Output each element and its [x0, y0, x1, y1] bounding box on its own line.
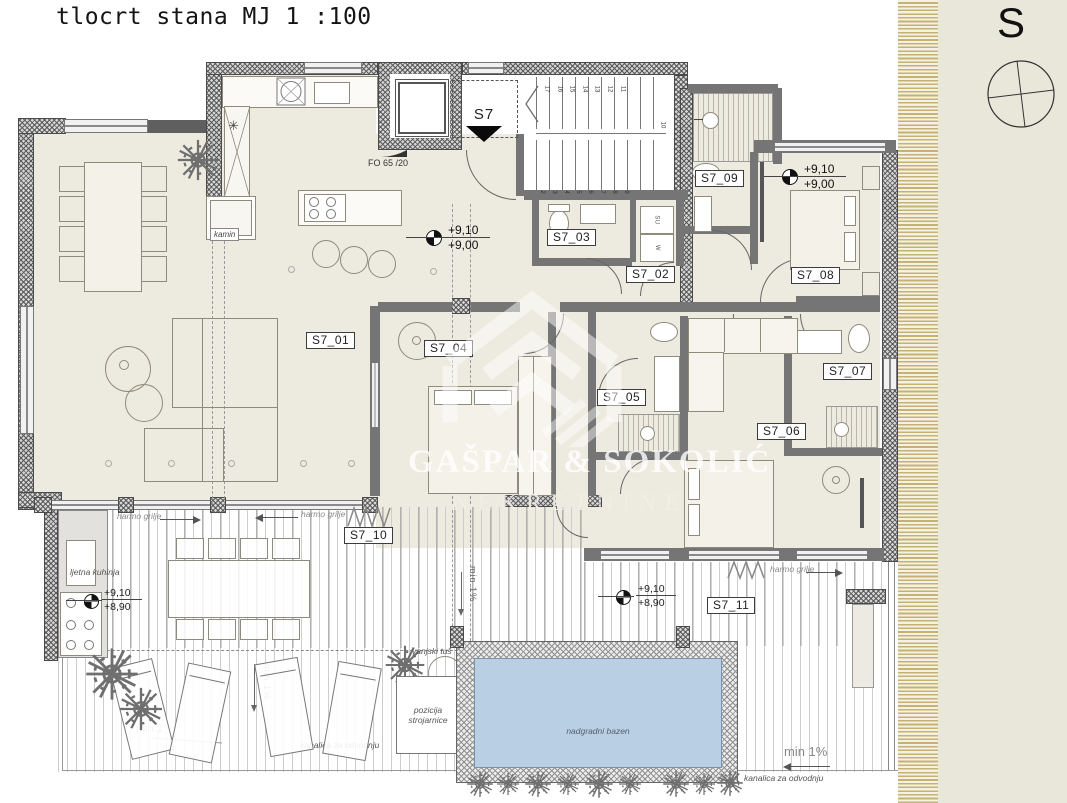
elevation-marker: [426, 230, 442, 246]
shrub-icon: [716, 769, 744, 797]
outdoor-chair: [240, 619, 268, 640]
elevation-value: +9,10: [104, 587, 131, 599]
outdoor-shower-label: vanjski tuš: [412, 646, 452, 656]
elevation-marker: [782, 169, 798, 185]
elevation-value: +9,10: [448, 223, 478, 237]
stair-number: 7: [599, 186, 605, 198]
room-label: S7_06: [757, 423, 806, 440]
wall-bath9-bedroom8: [750, 152, 758, 264]
toilet-icon: [848, 324, 870, 353]
elevation-value: +8,90: [638, 597, 665, 609]
elevation-marker: [616, 590, 631, 605]
dining-chair: [141, 166, 167, 192]
window-east: [883, 358, 897, 390]
room-label: S7_07: [823, 363, 872, 380]
stair-number: 3: [551, 186, 557, 198]
wall-terrace-west: [44, 505, 58, 661]
pier-1: [34, 497, 52, 513]
stair-number: 17: [543, 83, 549, 96]
wall-hall-stairs: [516, 134, 524, 196]
window-south-3: [796, 550, 868, 560]
ceiling-spot: [300, 460, 307, 467]
washer-label: W: [654, 245, 660, 251]
watermark-name: GAŠPAR & SOKOLIĆ: [408, 444, 771, 481]
coffee-table: [125, 384, 163, 422]
shrub-icon: [618, 772, 642, 796]
stair-number: 14: [581, 83, 587, 96]
kitchen-sink-icon: [276, 77, 306, 106]
dryer-unit: SU: [640, 206, 674, 234]
watermark-subtitle: NEKRETNINE: [452, 490, 688, 516]
outdoor-chair: [240, 538, 268, 559]
wardrobe-run: [688, 318, 798, 354]
planter: [852, 604, 874, 688]
coffee-table-dot: [119, 360, 129, 370]
stair-number: 5: [575, 186, 581, 198]
wardrobe-side: [688, 352, 724, 412]
wardrobe-panel: [760, 162, 764, 242]
dining-chair: [59, 166, 85, 192]
folding-shutter-label: harmo grilje: [117, 511, 161, 521]
wall-wc-left: [532, 200, 539, 260]
stair-numbers-upper: 17161514131211: [540, 77, 670, 87]
stair-number-corner: 10: [659, 119, 665, 132]
wardrobe-divider: [760, 318, 761, 352]
outdoor-chair: [272, 538, 300, 559]
shrub-icon: [662, 770, 690, 798]
shower-head-icon: [834, 422, 849, 437]
pier-pool: [676, 626, 690, 648]
outdoor-chair: [208, 538, 236, 559]
shrub-icon: [466, 770, 494, 798]
floor-plan-canvas: tlocrt stana MJ 1 :100: [0, 0, 1067, 803]
compass-icon: [986, 59, 1056, 129]
folded-shutter-icon: [726, 560, 768, 580]
outdoor-chair: [272, 619, 300, 640]
stair-number: 6: [587, 186, 593, 198]
elevation-value: +9,10: [638, 583, 665, 595]
wardrobe-divider: [724, 318, 725, 352]
fireplace-label: kamin: [210, 228, 239, 241]
elevation-value: +8,90: [104, 601, 131, 613]
bar-stool: [312, 240, 340, 268]
folded-shutter-icon: [346, 506, 392, 528]
outdoor-chair: [208, 619, 236, 640]
nightstand: [862, 166, 880, 190]
tv-cabinet: [144, 428, 224, 482]
stair-number: 16: [556, 83, 562, 96]
pier-pool: [450, 626, 464, 648]
outdoor-table: [168, 560, 310, 618]
burner-icon: [309, 209, 319, 219]
folding-shutter-label: harmo grilje: [301, 509, 345, 519]
dining-chair: [141, 256, 167, 282]
watermark-logo: [432, 282, 632, 447]
burner-icon: [326, 209, 336, 219]
stair-landing-line: [536, 133, 666, 134]
summer-kitchen-label: ljetna kuhinja: [70, 567, 120, 577]
sidebar-hatch-strip: [898, 0, 938, 803]
stair-number: 8: [611, 186, 617, 198]
room-label-terrace2: S7_11: [707, 597, 755, 614]
burner-icon: [326, 197, 336, 207]
stair-number: 15: [568, 83, 574, 96]
window-bedroom8: [774, 142, 886, 152]
elevation-value: +9,10: [804, 162, 834, 176]
pillow: [844, 196, 856, 226]
bar-stool: [340, 246, 368, 274]
shrub-icon: [556, 772, 580, 796]
pouf-dot: [832, 476, 840, 484]
room-label: S7_09: [695, 170, 744, 187]
burner-icon: [66, 640, 76, 650]
window-west: [20, 306, 34, 434]
stair-number: 13: [594, 83, 600, 96]
vanity: [794, 330, 842, 354]
terrace-deck-left-joints: [58, 507, 584, 648]
elevation-value: +9,00: [804, 177, 834, 191]
window-south-1: [600, 550, 670, 560]
ceiling-spot: [168, 460, 175, 467]
stair-number: 4: [563, 186, 569, 198]
slope-label-right: min 1%: [784, 744, 827, 759]
shower-head-icon: [702, 112, 719, 129]
ceiling-spot: [105, 460, 112, 467]
ceiling-spot: [430, 268, 437, 275]
entry-unit-label: S7: [458, 106, 510, 123]
slope-arrow-down: [461, 572, 462, 610]
elevator-car: [398, 82, 446, 134]
entry-door-spec: FO 65 /20: [368, 158, 408, 168]
room-label-terrace: S7_10: [344, 527, 393, 544]
elevation-leader: [598, 596, 634, 597]
stair-number: 11: [619, 83, 625, 96]
stair-number: 2: [539, 186, 545, 198]
dining-chair: [141, 196, 167, 222]
pillow: [688, 504, 700, 536]
burner-icon: [66, 620, 76, 630]
room-label: S7_01: [306, 332, 355, 349]
arrow-right-icon: [806, 572, 836, 573]
stair-direction-arrow: [524, 84, 540, 124]
stair-number: 12: [606, 83, 612, 96]
room-label: S7_03: [547, 229, 596, 246]
toilet-icon: [650, 322, 678, 342]
machine-room-box: pozicija strojarnice: [396, 676, 460, 754]
pool-water: nadgradni bazen: [474, 658, 722, 768]
dining-chair: [59, 256, 85, 282]
dryer-label: SU: [654, 215, 660, 224]
stair-number: 9: [623, 186, 629, 198]
room-label: S7_02: [626, 266, 675, 283]
machine-room-label-1: pozicija: [414, 705, 442, 715]
room-label: S7_08: [791, 267, 840, 284]
elevation-marker: [84, 594, 99, 609]
tree-icon: [118, 686, 164, 732]
shower-arm: [694, 119, 703, 120]
pool-label: nadgradni bazen: [475, 726, 721, 736]
dining-chair: [141, 226, 167, 252]
nightstand: [862, 272, 880, 296]
bar-stool: [368, 250, 396, 278]
bidet: [694, 196, 712, 232]
dining-chair: [59, 226, 85, 252]
wall-east: [882, 150, 898, 562]
elevation-leader: [66, 600, 102, 601]
pillow: [844, 232, 856, 262]
wall-bath5-bedroom6: [680, 316, 688, 460]
entry-arrow-icon: [466, 126, 502, 142]
window-dining: [64, 119, 148, 133]
drain-label-right: kanalica za odvodnju: [744, 773, 823, 783]
slope-label-vertical: min 1%: [468, 566, 478, 602]
window-south-2: [688, 550, 780, 560]
arrow-left-icon: [262, 517, 298, 518]
sink: [580, 204, 616, 224]
wall-wc-bottom: [532, 258, 632, 266]
outdoor-chair: [176, 619, 204, 640]
dining-table: [84, 162, 142, 292]
page-title: tlocrt stana MJ 1 :100: [56, 4, 372, 30]
window-kitchen: [304, 62, 362, 74]
plant-icon: [176, 138, 220, 182]
north-letter: S: [997, 2, 1025, 44]
arrow-left-icon: [790, 766, 830, 767]
tv-panel: [860, 478, 864, 528]
washer-unit: W: [640, 234, 674, 262]
summer-kitchen-cabinet: [66, 540, 96, 586]
wall-north-dining: [18, 118, 66, 134]
ceiling-spot: [348, 460, 355, 467]
wall-showerdeck-north: [688, 84, 778, 93]
elevation-divider: [636, 595, 676, 596]
outdoor-chair: [176, 538, 204, 559]
terrace-west-edge: [62, 650, 63, 771]
ceiling-spot: [228, 460, 235, 467]
window-stairhall: [468, 62, 504, 74]
wall-laundry-right: [676, 200, 684, 266]
vanity: [654, 356, 680, 412]
toilet-cistern: [548, 204, 570, 212]
pier-east: [846, 589, 886, 604]
drain-channel: [888, 562, 895, 770]
asterisk-symbol: ✳: [228, 118, 239, 134]
ceiling-spot: [288, 266, 295, 273]
shrub-icon: [496, 772, 520, 796]
door-swing-mark: [380, 148, 408, 158]
kitchen-appliance: [314, 82, 350, 104]
wall-wc-laundry: [630, 200, 636, 262]
wall-bedroom8-bottom: [796, 296, 880, 304]
armchair-dot: [412, 336, 421, 345]
shrub-icon: [584, 769, 614, 799]
burner-icon: [309, 197, 319, 207]
stair-numbers-lower: 23456789: [536, 180, 666, 190]
elevation-divider: [102, 599, 142, 600]
sill-dining: [148, 120, 214, 133]
shrub-icon: [692, 772, 716, 796]
arrow-right-icon: [160, 519, 194, 520]
machine-room-label-2: strojarnice: [408, 715, 447, 725]
shrub-icon: [524, 770, 552, 798]
wall-bath7-bottom: [784, 448, 882, 456]
dining-chair: [59, 196, 85, 222]
burner-icon: [84, 620, 94, 630]
door-living-pocket: [371, 362, 379, 428]
shower-head-icon: [640, 426, 655, 441]
elevation-value: +9,00: [448, 238, 478, 252]
